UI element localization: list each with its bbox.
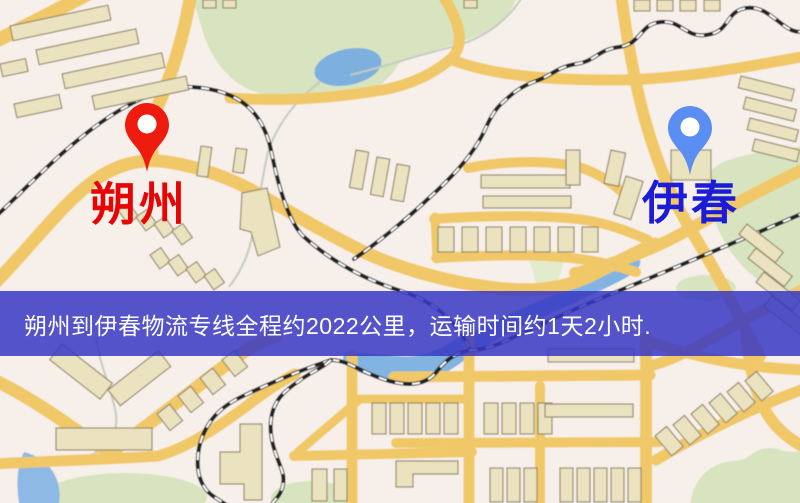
origin-label: 朔州 [90,178,188,230]
route-map: 朔州 伊春 朔州到伊春物流专线全程约2022公里，运输时间约1天2小时. [0,0,800,503]
route-banner: 朔州到伊春物流专线全程约2022公里，运输时间约1天2小时. [0,291,800,356]
destination-pin-hole [681,118,700,137]
map-background: 朔州 伊春 [0,0,800,503]
route-banner-text: 朔州到伊春物流专线全程约2022公里，运输时间约1天2小时. [0,307,651,341]
origin-pin-hole [138,115,157,134]
destination-label: 伊春 [641,177,740,229]
